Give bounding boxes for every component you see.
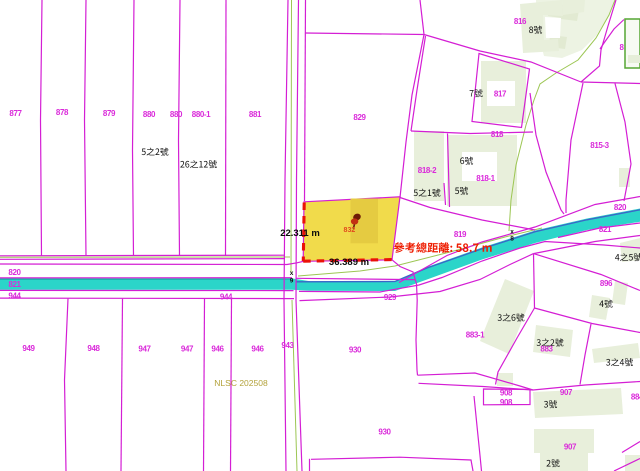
svg-text:22.311 m: 22.311 m	[280, 228, 320, 239]
svg-text:948: 948	[87, 344, 100, 353]
svg-text:819: 819	[454, 230, 467, 239]
svg-text:944: 944	[220, 293, 233, 302]
svg-text:879: 879	[103, 109, 116, 118]
svg-text:930: 930	[378, 428, 391, 437]
svg-text:832: 832	[344, 227, 356, 234]
svg-text:36.389 m: 36.389 m	[329, 257, 369, 268]
svg-text:821: 821	[599, 225, 612, 234]
svg-text:818: 818	[491, 130, 504, 139]
svg-text:821: 821	[8, 280, 21, 289]
svg-text:907: 907	[560, 388, 573, 397]
svg-text:817: 817	[494, 90, 507, 99]
svg-text:878: 878	[56, 108, 69, 117]
svg-text:908: 908	[500, 389, 513, 398]
svg-text:944: 944	[8, 292, 21, 301]
svg-text:x: x	[510, 229, 514, 236]
svg-text:877: 877	[9, 109, 22, 118]
svg-text:881: 881	[249, 110, 262, 119]
svg-text:883-1: 883-1	[466, 331, 485, 340]
svg-text:884: 884	[631, 393, 640, 402]
svg-text:943: 943	[281, 341, 294, 350]
svg-text:930: 930	[349, 346, 362, 355]
svg-text:8: 8	[510, 236, 514, 243]
svg-text:x: x	[290, 270, 294, 277]
svg-text:815-3: 815-3	[590, 141, 609, 150]
svg-text:880-1: 880-1	[192, 110, 211, 119]
svg-text:929: 929	[384, 293, 397, 302]
svg-text:816: 816	[514, 17, 527, 26]
svg-text:947: 947	[181, 345, 194, 354]
svg-text:946: 946	[211, 345, 224, 354]
svg-text:880: 880	[170, 110, 183, 119]
svg-text:NLSC 202508: NLSC 202508	[214, 378, 268, 388]
svg-text:947: 947	[138, 345, 151, 354]
svg-text:820: 820	[614, 203, 627, 212]
svg-text:908: 908	[500, 398, 513, 407]
svg-text:9: 9	[290, 278, 294, 285]
svg-text:829: 829	[353, 113, 366, 122]
svg-text:820: 820	[8, 268, 21, 277]
svg-text:880: 880	[143, 110, 156, 119]
svg-text:946: 946	[251, 345, 264, 354]
svg-text:896: 896	[600, 279, 613, 288]
svg-text:818-1: 818-1	[476, 174, 495, 183]
svg-text:949: 949	[22, 344, 35, 353]
svg-text:818-2: 818-2	[418, 166, 437, 175]
svg-text:907: 907	[564, 443, 577, 452]
